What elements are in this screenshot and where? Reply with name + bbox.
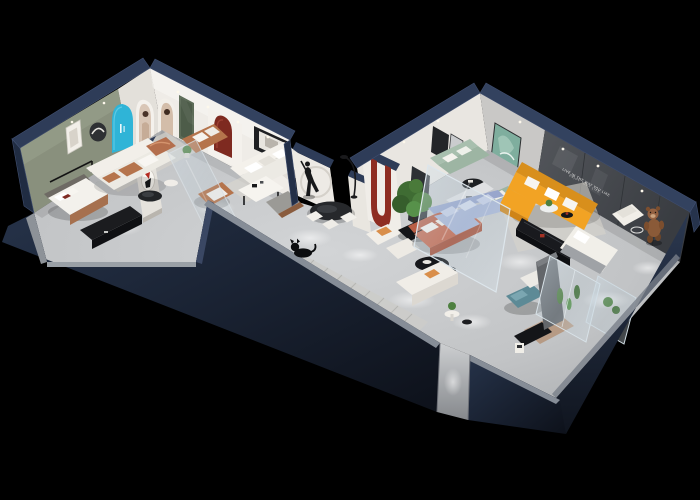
red-bowl (566, 212, 569, 215)
table-deco1 (252, 184, 257, 187)
blue-arch-text-mark (120, 124, 122, 133)
side-table-stem (451, 314, 454, 321)
poster-2-figure (164, 109, 170, 115)
slogan-downlight (562, 148, 565, 151)
table-book (468, 180, 473, 183)
coffee-table-sheen (142, 192, 154, 197)
showroom-floorplan-render: LIVE IN THE WAY YOU LIKE ENJOY YOUR LIFE (0, 0, 700, 500)
table-plant (448, 302, 456, 310)
entrance-doorway (437, 343, 470, 420)
blue-arch (112, 104, 133, 153)
table-tray (423, 260, 432, 264)
doorway-glow (444, 368, 462, 396)
round-table-plant (546, 200, 553, 207)
arc-lamp-shade (340, 155, 348, 159)
black-side-table (462, 320, 472, 325)
poster-1-figure (143, 111, 149, 117)
oval-table-sheen (317, 205, 337, 213)
table-deco2 (260, 181, 263, 184)
console-red-deco (540, 234, 545, 237)
arc-lamp-base (351, 195, 358, 198)
magazine (517, 345, 522, 348)
blue-arch-text-mark2 (124, 126, 125, 132)
console-deco (104, 231, 108, 233)
bedroom-front-cap (47, 262, 196, 267)
white-side-table (164, 180, 178, 187)
